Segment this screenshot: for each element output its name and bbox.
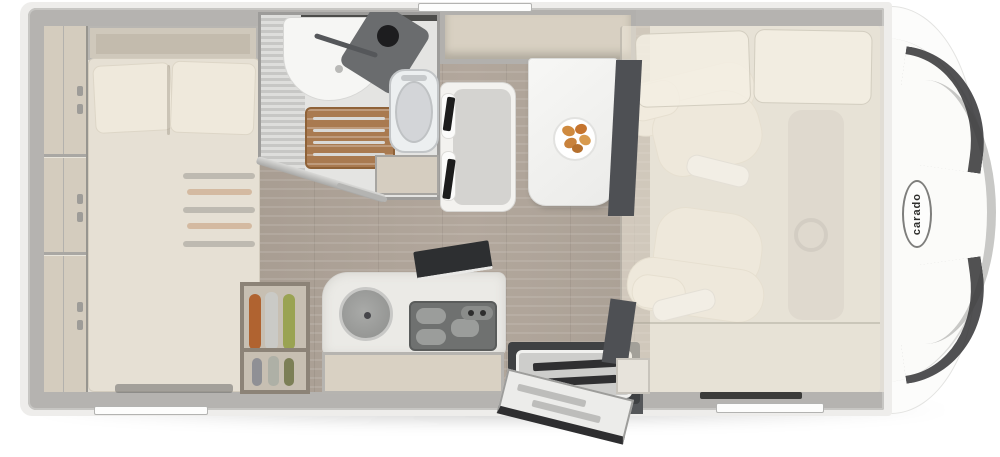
hob-knob-icon xyxy=(480,310,486,316)
drop-down-bed-overlay xyxy=(620,26,880,392)
croissant-icon xyxy=(561,124,577,138)
pantry-item-icon xyxy=(284,358,294,386)
toilet-lid-hinge xyxy=(401,75,427,81)
wardrobe-hinge-icon xyxy=(77,86,83,96)
bed-pillow-right xyxy=(170,61,256,136)
cab-door-window xyxy=(700,392,802,399)
wardrobe-hinge-icon xyxy=(77,302,83,312)
kitchen-counter xyxy=(322,272,506,356)
dinette-bench xyxy=(440,82,516,212)
burner-support-icon xyxy=(416,308,446,324)
shelf-divider xyxy=(44,154,86,157)
rear-cabinet-block xyxy=(44,26,88,392)
fruit-plate xyxy=(553,117,597,161)
toilet-seat xyxy=(395,81,433,143)
cabinet-vertical-seam xyxy=(63,26,64,392)
drop-down-bed-pillow-right xyxy=(753,29,872,105)
awning-rail-top xyxy=(418,3,532,12)
hob-control-panel xyxy=(461,306,493,320)
windshield-arc-top-icon xyxy=(890,46,996,174)
windshield-arc-bottom-icon xyxy=(890,256,996,384)
kitchen-base-cabinet xyxy=(322,352,504,394)
duvet-crease xyxy=(167,65,170,135)
sink-drain-icon xyxy=(364,312,371,319)
pantry-item-icon xyxy=(249,294,261,350)
burner-support-icon xyxy=(451,319,479,337)
wardrobe-hinge-icon xyxy=(77,194,83,204)
sideboard-cabinet xyxy=(616,358,650,394)
wardrobe-hinge-icon xyxy=(77,212,83,222)
kitchen-sink xyxy=(339,287,393,341)
dinette-table xyxy=(528,58,618,206)
pantry-item-icon xyxy=(252,358,262,386)
awning-rail-bottom xyxy=(94,406,208,415)
headboard-inner xyxy=(96,34,250,54)
cab-door-handle xyxy=(716,403,824,413)
wardrobe-hinge-icon xyxy=(77,320,83,330)
wardrobe-hinge-icon xyxy=(77,104,83,114)
carado-logo-text: carado xyxy=(911,193,923,235)
carado-logo: carado xyxy=(902,180,932,248)
bed-foot-mat xyxy=(115,384,233,393)
drop-down-bed-seam xyxy=(622,322,880,324)
under-bed-storage-ghost xyxy=(183,167,255,259)
basin-drain-icon xyxy=(335,65,343,73)
faucet-knob-icon xyxy=(377,25,399,47)
pantry-item-icon xyxy=(283,294,295,350)
bench-cushion xyxy=(453,89,511,205)
headboard-shelf xyxy=(88,26,258,60)
pantry-item-icon xyxy=(268,356,279,386)
toilet xyxy=(389,69,439,153)
overhead-locker xyxy=(440,10,636,64)
pantry-item-icon xyxy=(265,292,278,350)
croissant-icon xyxy=(572,144,583,153)
floorplan-image: carado xyxy=(0,0,1000,457)
shelf-divider xyxy=(44,252,86,255)
gas-hob xyxy=(409,301,497,351)
croissant-icon xyxy=(574,123,588,136)
rear-bed xyxy=(88,58,260,392)
pantry-cabinet xyxy=(240,282,310,394)
bathroom-cabinet xyxy=(375,155,439,195)
pantry-shelf-divider xyxy=(244,348,306,352)
hob-knob-icon xyxy=(468,310,474,316)
burner-support-icon xyxy=(416,329,446,345)
drop-down-bed-pillow-left xyxy=(635,30,752,108)
bed-pillow-left xyxy=(92,62,173,134)
door-slat-icon xyxy=(531,400,601,424)
